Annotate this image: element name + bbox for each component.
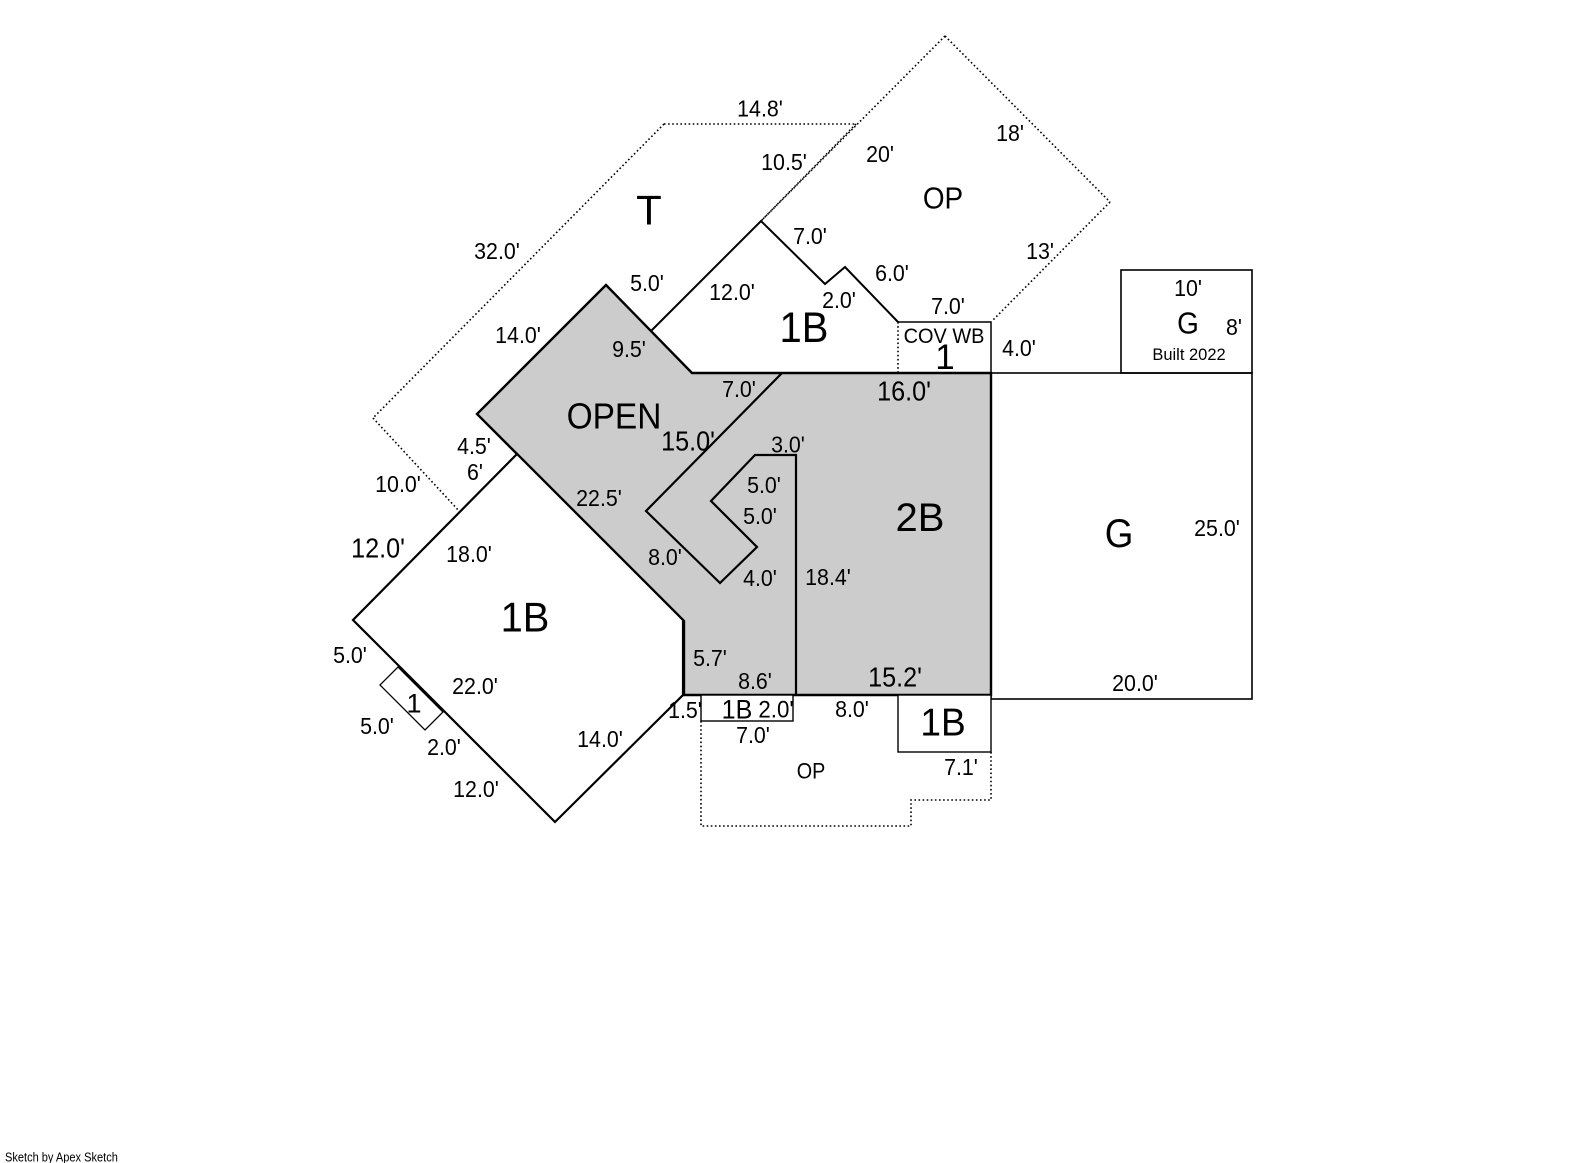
svg-text:7.0': 7.0' (722, 376, 756, 402)
svg-text:7.0': 7.0' (736, 722, 770, 748)
svg-text:10.0': 10.0' (375, 471, 421, 497)
svg-text:1: 1 (406, 688, 421, 718)
svg-text:16.0': 16.0' (877, 375, 931, 407)
svg-text:COV WB: COV WB (904, 325, 985, 349)
svg-text:2.0': 2.0' (758, 696, 793, 723)
svg-text:7.1': 7.1' (944, 754, 978, 780)
svg-text:14.8': 14.8' (737, 96, 783, 122)
svg-text:25.0': 25.0' (1194, 515, 1240, 541)
svg-text:14.0': 14.0' (577, 726, 623, 752)
svg-text:32.0': 32.0' (474, 238, 520, 264)
svg-text:G: G (1105, 511, 1134, 556)
svg-text:3.0': 3.0' (771, 432, 805, 458)
svg-text:14.0': 14.0' (495, 322, 541, 348)
svg-text:22.5': 22.5' (576, 485, 622, 511)
svg-text:Sketch by Apex Sketch: Sketch by Apex Sketch (5, 1150, 118, 1163)
svg-text:8.0': 8.0' (648, 544, 682, 570)
svg-text:15.0': 15.0' (661, 425, 715, 457)
svg-text:18': 18' (996, 120, 1024, 146)
svg-text:5.7': 5.7' (693, 645, 727, 671)
svg-text:6.0': 6.0' (875, 260, 909, 286)
svg-text:1B: 1B (501, 594, 550, 641)
svg-text:5.0': 5.0' (333, 642, 367, 668)
svg-text:OPEN: OPEN (567, 397, 662, 436)
svg-text:18.4': 18.4' (805, 564, 851, 590)
svg-text:5.0': 5.0' (743, 503, 777, 529)
svg-text:13': 13' (1026, 238, 1054, 264)
svg-text:1B: 1B (920, 702, 965, 745)
svg-text:20': 20' (866, 141, 894, 167)
svg-text:OP: OP (923, 181, 963, 216)
svg-text:1B: 1B (780, 302, 829, 351)
svg-text:20.0': 20.0' (1112, 670, 1158, 696)
svg-text:OP: OP (797, 760, 826, 784)
svg-text:5.0': 5.0' (360, 713, 394, 739)
svg-text:5.0': 5.0' (630, 270, 664, 296)
svg-text:4.0': 4.0' (743, 565, 777, 591)
svg-text:8.0': 8.0' (835, 696, 869, 722)
svg-text:2.0': 2.0' (822, 287, 856, 313)
svg-text:2.0': 2.0' (427, 734, 461, 760)
svg-text:15.2': 15.2' (868, 661, 922, 693)
svg-text:8.6': 8.6' (738, 668, 772, 694)
svg-text:9.5': 9.5' (612, 336, 646, 362)
svg-text:6': 6' (467, 459, 483, 485)
svg-text:8': 8' (1226, 314, 1242, 340)
svg-text:5.0': 5.0' (747, 472, 781, 498)
svg-text:12.0': 12.0' (453, 776, 499, 802)
svg-text:12.0': 12.0' (709, 279, 755, 305)
svg-text:18.0': 18.0' (446, 541, 492, 567)
svg-text:G: G (1177, 306, 1199, 341)
svg-text:4.0': 4.0' (1002, 335, 1036, 361)
svg-text:10.5': 10.5' (761, 149, 807, 175)
svg-text:7.0': 7.0' (793, 223, 827, 249)
svg-text:10': 10' (1174, 275, 1202, 301)
svg-text:7.0': 7.0' (931, 293, 965, 319)
svg-text:2B: 2B (896, 496, 945, 540)
svg-text:1.5': 1.5' (668, 697, 702, 723)
svg-text:4.5': 4.5' (457, 433, 491, 459)
svg-text:1B: 1B (722, 693, 753, 724)
svg-text:T: T (636, 187, 662, 234)
svg-text:12.0': 12.0' (351, 532, 405, 564)
svg-text:Built 2022: Built 2022 (1152, 345, 1225, 364)
svg-text:22.0': 22.0' (452, 673, 498, 699)
